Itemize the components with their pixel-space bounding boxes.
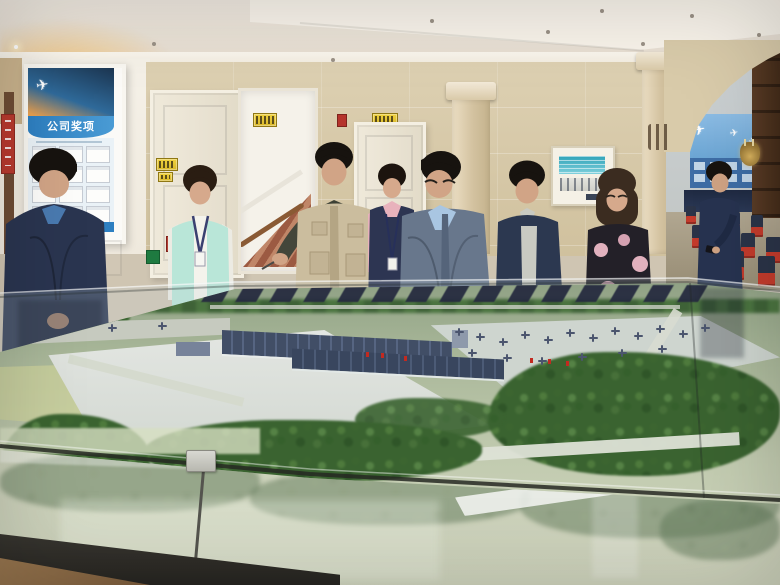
exhibition-hall-photo: ✈ 公司奖项 bbox=[0, 0, 780, 585]
glass-clamp bbox=[186, 450, 216, 472]
reflected-trees bbox=[660, 500, 780, 560]
